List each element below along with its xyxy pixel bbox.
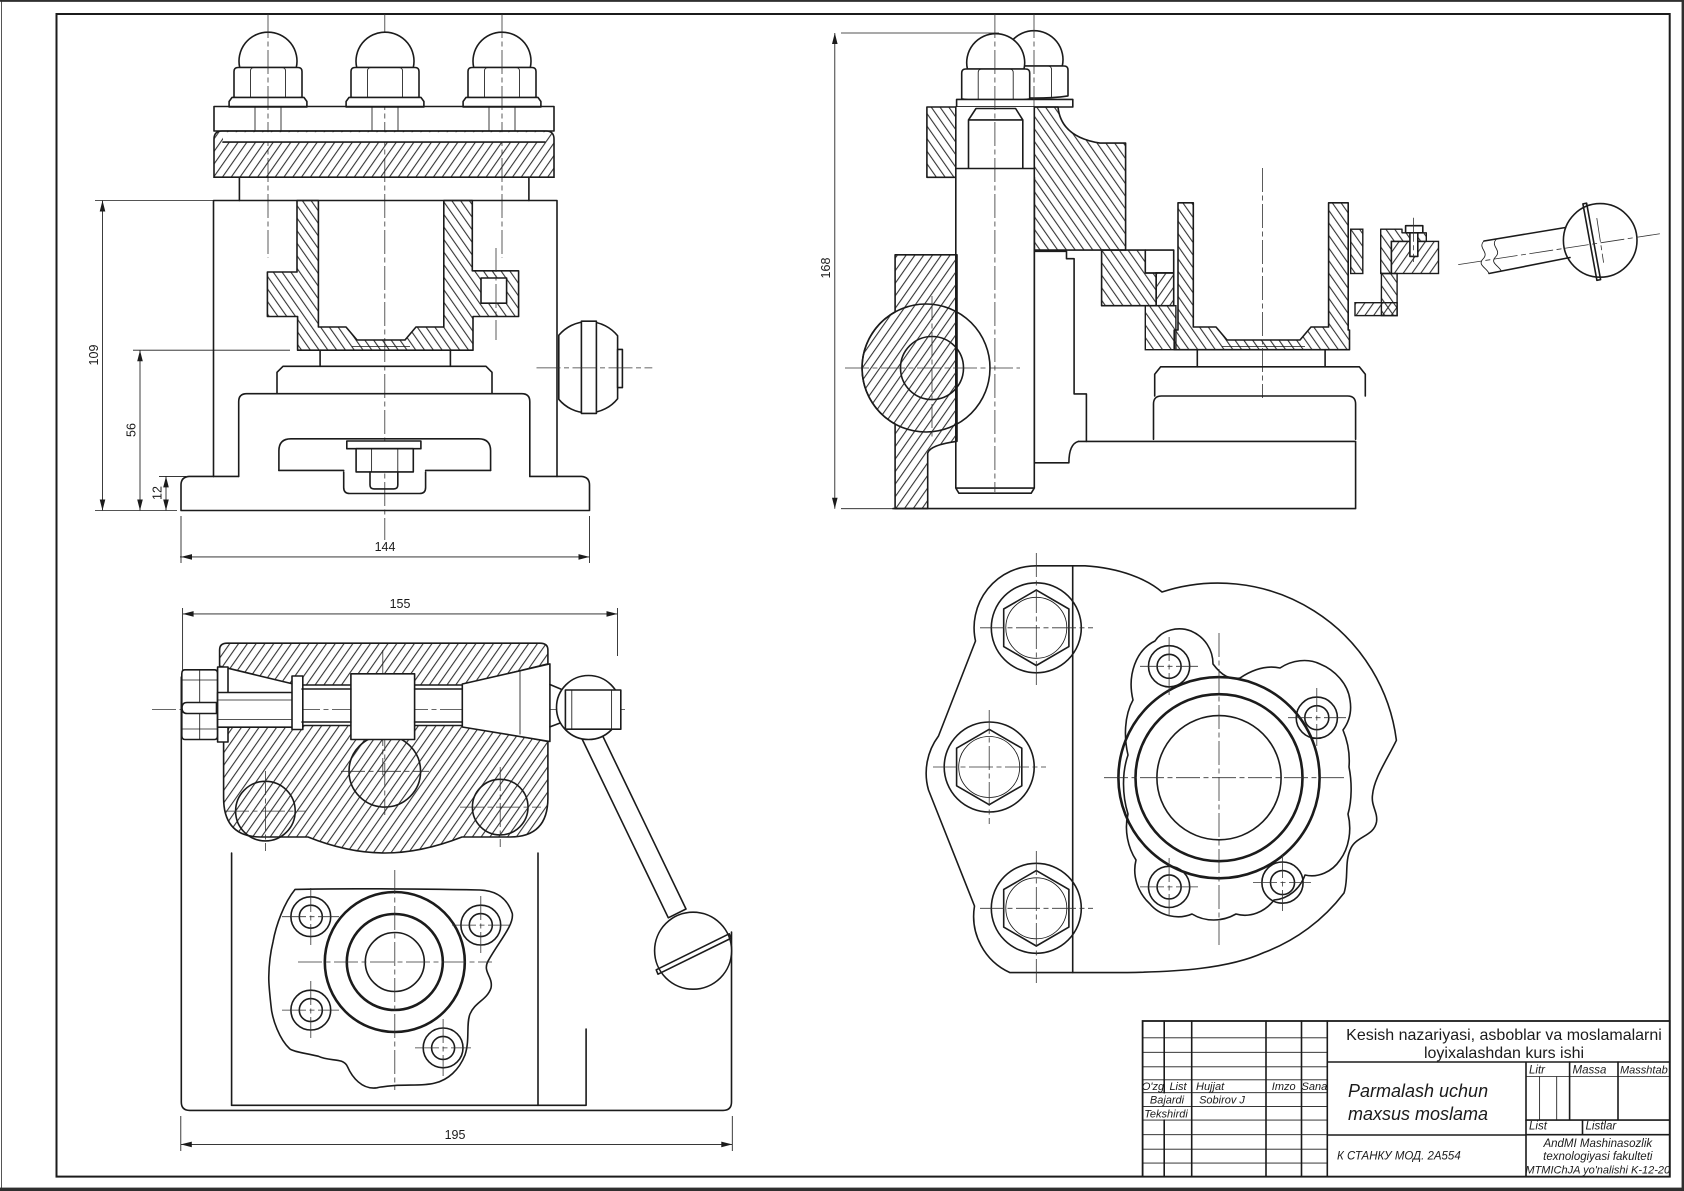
svg-text:56: 56 — [125, 423, 139, 437]
svg-text:К СТАНКУ МОД. 2А554: К СТАНКУ МОД. 2А554 — [1337, 1151, 1461, 1163]
svg-text:195: 195 — [445, 1128, 466, 1142]
svg-text:12: 12 — [151, 486, 165, 500]
svg-text:List: List — [1529, 1121, 1548, 1133]
svg-text:List: List — [1169, 1081, 1187, 1093]
svg-text:Sana: Sana — [1302, 1081, 1328, 1093]
svg-text:Parmalash uchun: Parmalash uchun — [1348, 1081, 1488, 1101]
svg-text:155: 155 — [390, 597, 411, 611]
svg-text:Listlar: Listlar — [1586, 1121, 1618, 1133]
svg-text:Masshtab: Masshtab — [1620, 1065, 1668, 1077]
svg-text:texnologiyasi fakulteti: texnologiyasi fakulteti — [1543, 1151, 1653, 1163]
svg-text:loyixalashdan kurs ishi: loyixalashdan kurs ishi — [1424, 1045, 1584, 1062]
svg-text:Tekshirdi: Tekshirdi — [1144, 1108, 1188, 1120]
svg-text:O'zg: O'zg — [1142, 1081, 1165, 1093]
svg-text:AndMI Mashinasozlik: AndMI Mashinasozlik — [1542, 1138, 1653, 1150]
svg-text:144: 144 — [375, 540, 396, 554]
svg-text:Litr: Litr — [1529, 1065, 1546, 1077]
svg-text:168: 168 — [819, 258, 833, 279]
svg-text:Sobirov J: Sobirov J — [1199, 1095, 1245, 1107]
svg-text:Hujjat: Hujjat — [1196, 1081, 1225, 1093]
svg-text:Massa: Massa — [1573, 1065, 1607, 1077]
svg-text:maxsus moslama: maxsus moslama — [1348, 1104, 1488, 1124]
svg-text:Imzo: Imzo — [1272, 1081, 1296, 1093]
svg-text:Bajardi: Bajardi — [1150, 1095, 1185, 1107]
svg-text:MTMIChJA yo'nalishi K-12-20: MTMIChJA yo'nalishi K-12-20 — [1525, 1165, 1671, 1177]
svg-text:Kesish nazariyasi, asboblar va: Kesish nazariyasi, asboblar va moslamala… — [1346, 1027, 1662, 1044]
svg-text:109: 109 — [87, 345, 101, 366]
